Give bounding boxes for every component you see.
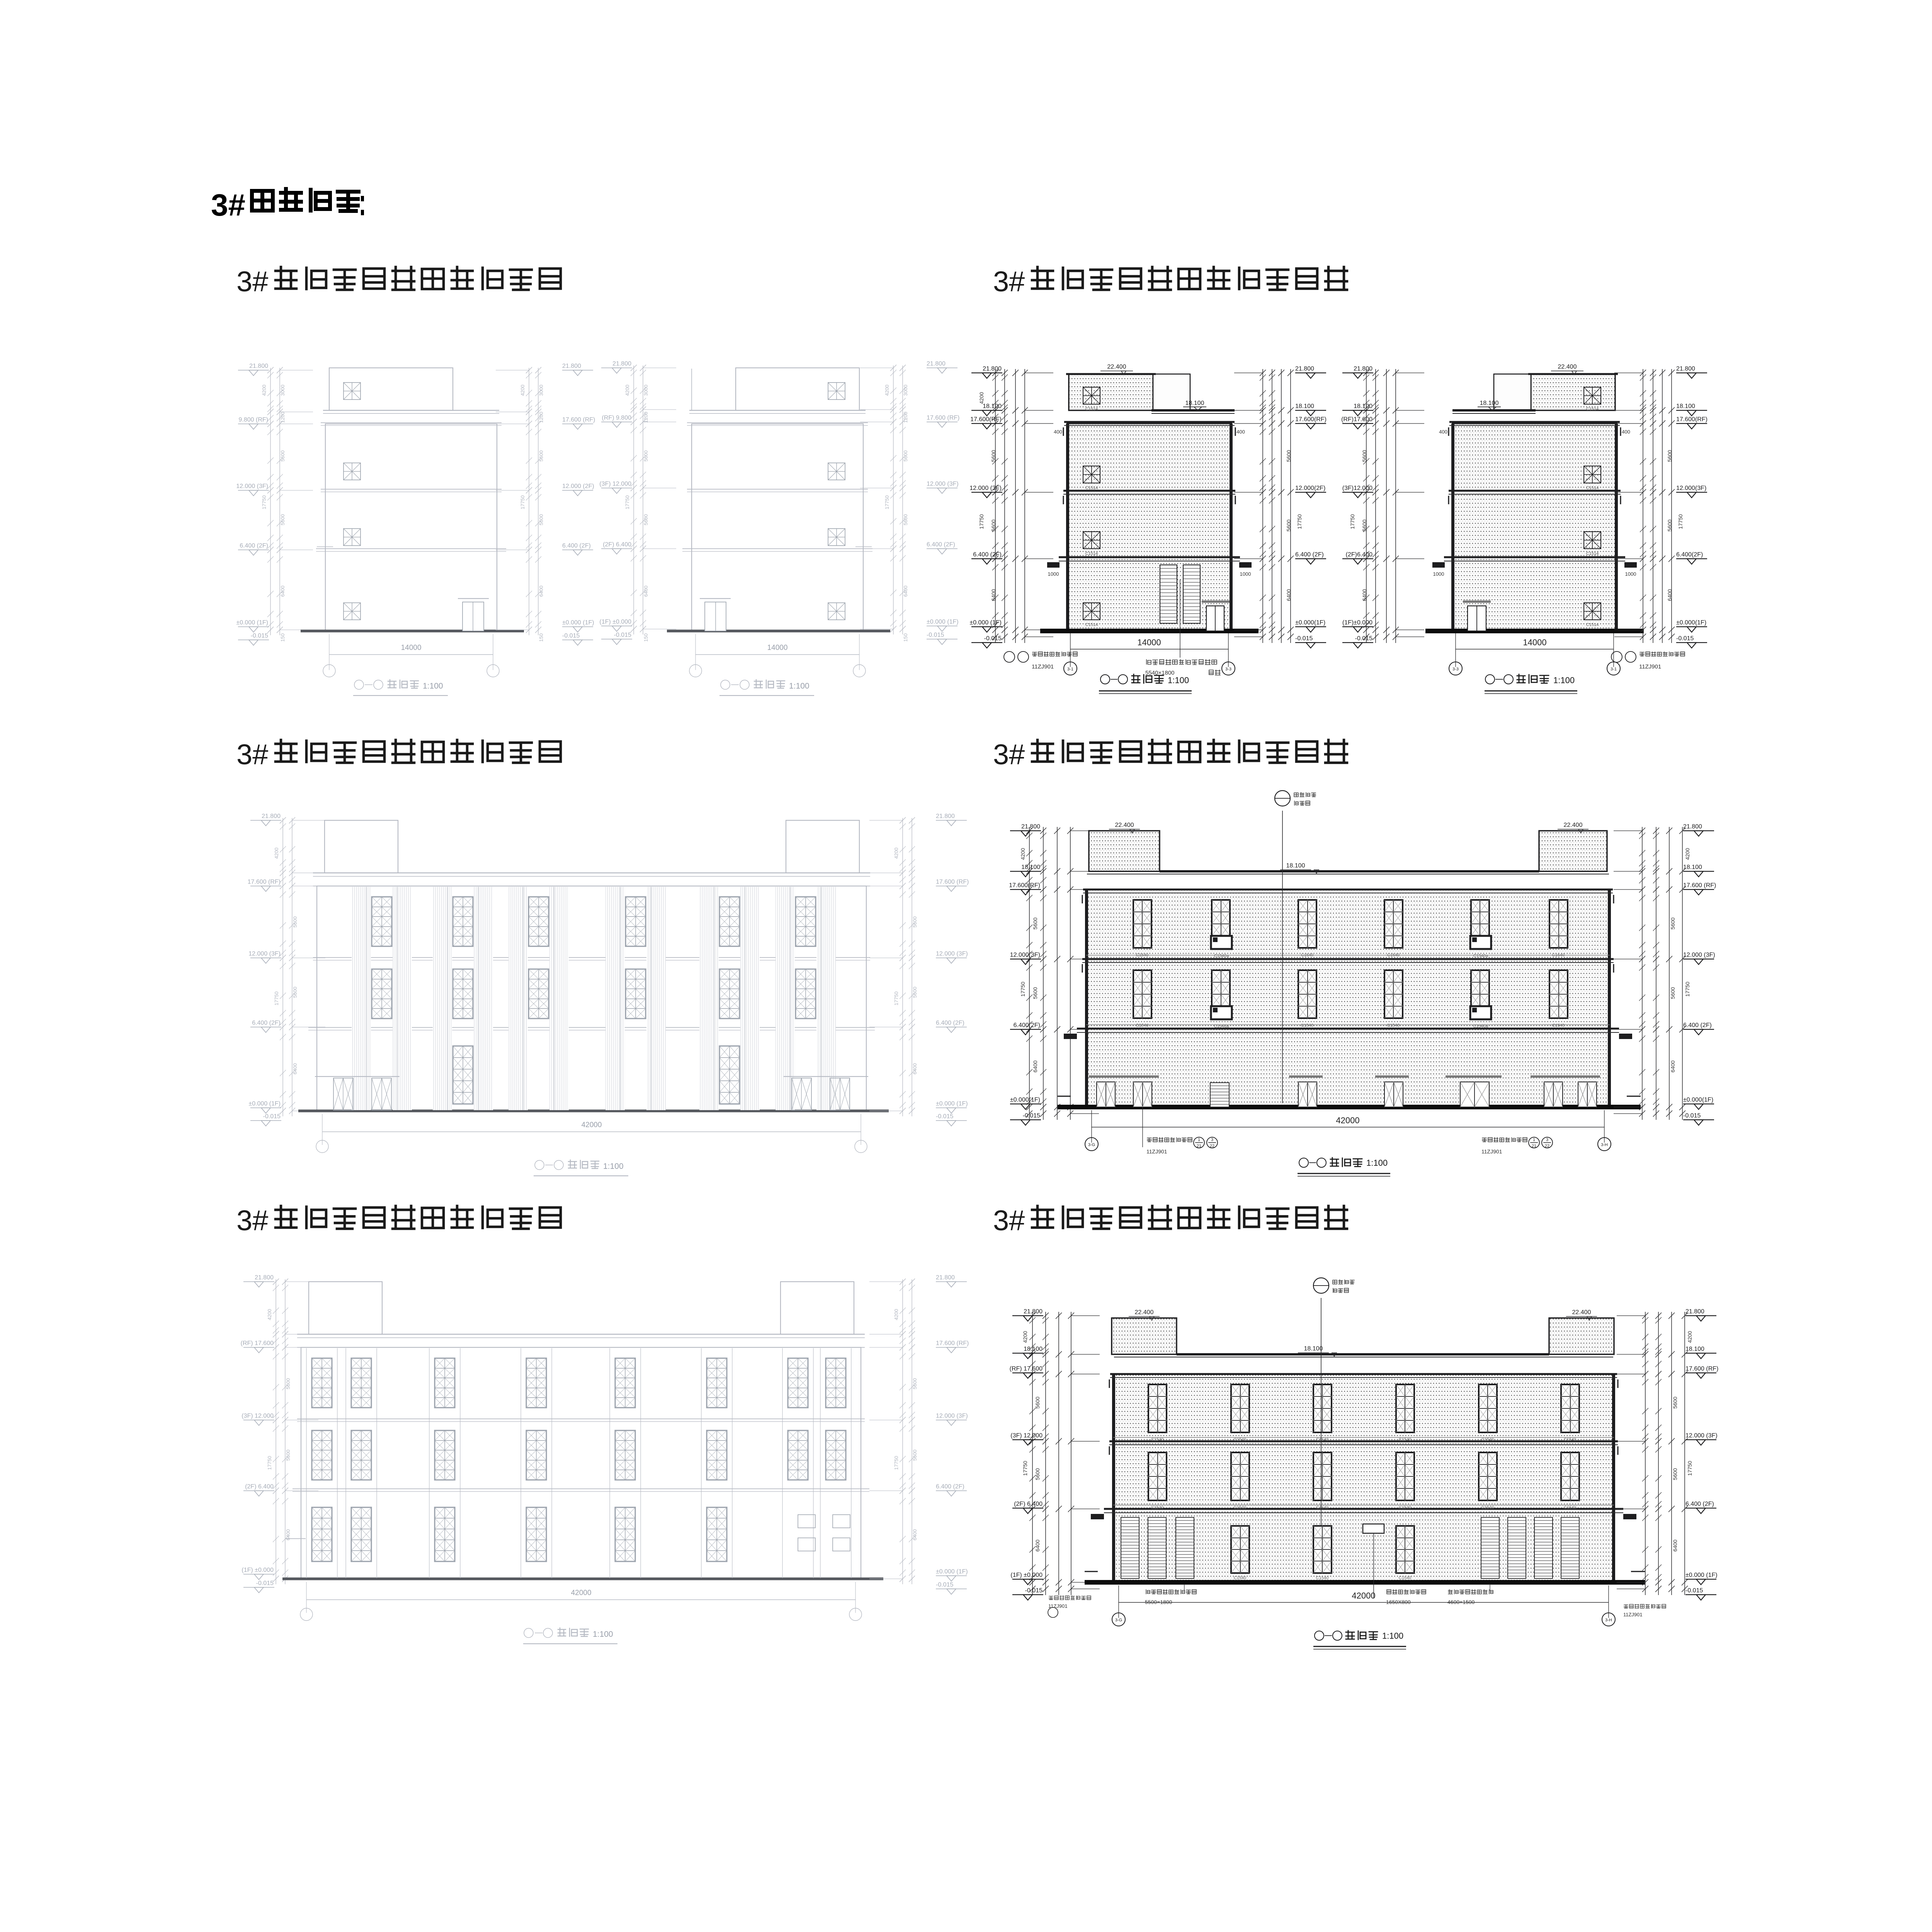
- svg-text:-0.015: -0.015: [256, 1580, 274, 1587]
- svg-text:6400: 6400: [1034, 1539, 1041, 1551]
- svg-text:(RF)17.600: (RF)17.600: [1341, 416, 1372, 423]
- svg-text:12.000 (3F): 12.000 (3F): [936, 1413, 968, 1419]
- svg-text:17.600 (RF): 17.600 (RF): [1683, 882, 1716, 889]
- svg-text:5600: 5600: [1034, 1396, 1041, 1408]
- svg-text:5600: 5600: [1034, 1468, 1041, 1480]
- svg-text:150: 150: [643, 633, 649, 642]
- svg-text:±0.000(1F): ±0.000(1F): [1010, 1097, 1040, 1103]
- svg-text:18.100: 18.100: [1286, 862, 1305, 869]
- svg-text:3000: 3000: [280, 385, 286, 396]
- svg-text:5600: 5600: [1670, 917, 1676, 929]
- svg-text:4200: 4200: [884, 385, 890, 396]
- svg-text:1000: 1000: [1625, 571, 1636, 577]
- svg-text:4200: 4200: [1020, 848, 1026, 860]
- svg-text:C1540: C1540: [1316, 1576, 1328, 1580]
- svg-text:1200: 1200: [280, 412, 286, 423]
- svg-text:18.100: 18.100: [1304, 1345, 1323, 1352]
- svg-text:5600: 5600: [292, 987, 298, 998]
- svg-text:18.100: 18.100: [1683, 864, 1702, 871]
- svg-text:C1540: C1540: [1387, 953, 1400, 957]
- svg-text:4200: 4200: [1687, 1331, 1693, 1343]
- svg-text:3#: 3#: [993, 738, 1025, 770]
- svg-text:21.800: 21.800: [983, 366, 1002, 372]
- svg-text:5600: 5600: [1667, 450, 1673, 462]
- svg-text:C1540: C1540: [1387, 1023, 1400, 1028]
- svg-text:21.800: 21.800: [1295, 366, 1314, 372]
- svg-text:1650X800: 1650X800: [1386, 1599, 1411, 1605]
- svg-text:C1514: C1514: [1085, 407, 1098, 412]
- svg-text:6400: 6400: [912, 1529, 918, 1541]
- svg-text:21.800: 21.800: [936, 1274, 955, 1281]
- svg-text:6400: 6400: [1361, 589, 1367, 601]
- svg-text:5600: 5600: [280, 451, 286, 462]
- svg-text:11ZJ901: 11ZJ901: [1639, 663, 1661, 670]
- svg-text:3: 3: [1211, 1138, 1213, 1142]
- svg-text:5600: 5600: [903, 451, 908, 462]
- svg-text:C1540a: C1540a: [1214, 954, 1229, 958]
- svg-text:5600: 5600: [1032, 987, 1038, 999]
- svg-text:6400: 6400: [292, 1063, 298, 1075]
- svg-text:5600: 5600: [1672, 1468, 1678, 1480]
- svg-text:4200: 4200: [893, 848, 899, 859]
- svg-text:5600: 5600: [285, 1450, 291, 1461]
- svg-text:22.400: 22.400: [1572, 1309, 1591, 1316]
- svg-text:3-3: 3-3: [1225, 667, 1231, 672]
- svg-text:3#: 3#: [993, 1204, 1025, 1236]
- svg-text:17.600 (RF): 17.600 (RF): [1685, 1366, 1718, 1372]
- svg-text:12.000 (3F): 12.000 (3F): [936, 951, 968, 957]
- svg-text:11ZJ901: 11ZJ901: [1481, 1148, 1502, 1155]
- svg-text:3000: 3000: [538, 385, 544, 396]
- svg-text:1200: 1200: [903, 412, 908, 423]
- svg-text:21.800: 21.800: [1021, 823, 1040, 830]
- svg-text:17750: 17750: [884, 495, 890, 509]
- svg-text:17750: 17750: [1020, 981, 1026, 997]
- svg-text:1000: 1000: [1433, 571, 1444, 577]
- svg-text:5600: 5600: [903, 514, 908, 526]
- svg-text:6400: 6400: [280, 586, 286, 597]
- svg-text:1200: 1200: [538, 412, 544, 423]
- svg-text:22: 22: [1210, 1144, 1214, 1148]
- svg-text:18.100: 18.100: [983, 403, 1002, 410]
- svg-text:4200: 4200: [261, 385, 267, 396]
- svg-text:3#: 3#: [236, 265, 268, 298]
- svg-text:5600: 5600: [643, 514, 649, 526]
- svg-text:6.400 (2F): 6.400 (2F): [1295, 551, 1324, 558]
- svg-text:5600: 5600: [1361, 450, 1367, 462]
- svg-text:12.000 (3F): 12.000 (3F): [1683, 952, 1715, 958]
- svg-text:9.800 (RF): 9.800 (RF): [239, 417, 268, 423]
- svg-text:6400: 6400: [990, 589, 997, 601]
- svg-text:C1540: C1540: [1399, 1576, 1411, 1580]
- svg-text:-0.015: -0.015: [614, 632, 631, 638]
- svg-text:6.400 (2F): 6.400 (2F): [562, 543, 591, 549]
- svg-text:6400: 6400: [1670, 1060, 1676, 1072]
- svg-text:5600: 5600: [1672, 1396, 1678, 1408]
- svg-text:3-1: 3-1: [1067, 667, 1073, 672]
- svg-text:3#: 3#: [993, 265, 1025, 298]
- svg-text:5600: 5600: [538, 514, 544, 526]
- svg-text:6.400 (2F): 6.400 (2F): [927, 541, 955, 548]
- svg-text:17750: 17750: [261, 495, 267, 509]
- svg-text:C1514: C1514: [1586, 551, 1599, 556]
- svg-text:-0.015: -0.015: [1685, 1587, 1703, 1594]
- svg-text:C1540: C1540: [1151, 1437, 1163, 1442]
- svg-text:21.800: 21.800: [1685, 1308, 1704, 1315]
- svg-text:42000: 42000: [1336, 1116, 1359, 1125]
- svg-text:(1F) ±0.000: (1F) ±0.000: [599, 619, 631, 625]
- svg-text:17.600(RF): 17.600(RF): [1676, 416, 1708, 423]
- svg-text:21.800: 21.800: [562, 363, 581, 369]
- svg-text:400: 400: [1622, 429, 1630, 435]
- svg-text:12.000(2F): 12.000(2F): [1295, 485, 1325, 492]
- svg-text:150: 150: [903, 633, 908, 642]
- svg-text:3#: 3#: [211, 188, 245, 222]
- svg-text:3-H: 3-H: [1605, 1618, 1612, 1622]
- svg-text:21.800: 21.800: [262, 813, 281, 820]
- svg-text:42000: 42000: [1352, 1591, 1375, 1600]
- svg-text:12.000(3F): 12.000(3F): [1676, 485, 1706, 492]
- svg-text:(3F) 12.000: (3F) 12.000: [599, 481, 631, 487]
- svg-text:6.400 (2F): 6.400 (2F): [240, 543, 268, 549]
- svg-text:1:100: 1:100: [1382, 1631, 1403, 1641]
- svg-text:42000: 42000: [571, 1589, 592, 1597]
- svg-text:22.400: 22.400: [1558, 364, 1577, 370]
- svg-text:C1540: C1540: [1301, 953, 1313, 957]
- svg-text:5600: 5600: [1667, 519, 1673, 531]
- svg-text:C1540: C1540: [1234, 1505, 1246, 1510]
- svg-text:C1540: C1540: [1136, 953, 1148, 957]
- svg-text:3: 3: [1546, 1138, 1548, 1142]
- svg-text:C1540: C1540: [1552, 1023, 1565, 1028]
- svg-text:22.400: 22.400: [1564, 822, 1583, 828]
- svg-text:17750: 17750: [520, 495, 526, 509]
- svg-text:6.400 (2F): 6.400 (2F): [936, 1020, 964, 1026]
- svg-text:17750: 17750: [1022, 1461, 1028, 1476]
- svg-text:C1540: C1540: [1136, 1023, 1148, 1028]
- svg-text:17.600 (RF): 17.600 (RF): [927, 415, 959, 421]
- svg-text:17.600 (RF): 17.600 (RF): [248, 879, 281, 885]
- svg-text:5600: 5600: [1361, 519, 1367, 531]
- svg-text:C1540: C1540: [1564, 1437, 1576, 1442]
- svg-text:-0.015: -0.015: [562, 633, 580, 639]
- svg-text:±0.000 (1F): ±0.000 (1F): [248, 1100, 281, 1107]
- svg-text:14000: 14000: [767, 644, 788, 652]
- svg-text:17.600(RF): 17.600(RF): [1295, 416, 1327, 423]
- svg-text:14000: 14000: [1523, 638, 1546, 647]
- svg-text:18.100: 18.100: [1480, 400, 1499, 406]
- svg-text:C1540: C1540: [1151, 1505, 1163, 1510]
- svg-text:3-G: 3-G: [1115, 1618, 1122, 1622]
- svg-text:C1540: C1540: [1234, 1576, 1246, 1580]
- svg-text:-0.015: -0.015: [1023, 1112, 1040, 1119]
- svg-text:6.400 (2F): 6.400 (2F): [936, 1483, 964, 1490]
- svg-text:C1514: C1514: [1085, 551, 1098, 556]
- svg-text:22.400: 22.400: [1107, 364, 1126, 370]
- svg-text:17.600 (RF): 17.600 (RF): [562, 417, 595, 423]
- svg-text:17750: 17750: [274, 992, 279, 1005]
- svg-text:22.400: 22.400: [1115, 822, 1134, 828]
- svg-text:(3F) 12.000: (3F) 12.000: [241, 1413, 274, 1419]
- svg-text:-0.015: -0.015: [927, 632, 944, 638]
- svg-text:C1514: C1514: [1586, 622, 1599, 627]
- svg-text:C1540: C1540: [1552, 953, 1565, 957]
- svg-text:22.400: 22.400: [1135, 1309, 1154, 1316]
- svg-text:C1540a: C1540a: [1214, 1024, 1229, 1029]
- svg-text:4200: 4200: [1684, 848, 1690, 860]
- svg-text:6400: 6400: [538, 586, 544, 597]
- svg-text:±0.000 (1F): ±0.000 (1F): [936, 1568, 968, 1575]
- svg-text:12.000 (3F): 12.000 (3F): [236, 483, 268, 490]
- svg-text:4200: 4200: [893, 1309, 899, 1320]
- svg-text:1:100: 1:100: [789, 682, 810, 690]
- svg-text:C1540: C1540: [1234, 1437, 1246, 1442]
- svg-text:21: 21: [1532, 1144, 1536, 1148]
- svg-text:21.800: 21.800: [1676, 366, 1695, 372]
- svg-text:5600: 5600: [990, 450, 997, 462]
- svg-text:-0.015: -0.015: [936, 1582, 953, 1588]
- svg-text:18.100: 18.100: [1354, 403, 1372, 410]
- svg-text:5600: 5600: [285, 1378, 291, 1389]
- svg-text:18.100: 18.100: [1676, 403, 1695, 410]
- svg-text:5600: 5600: [990, 519, 997, 531]
- svg-text:1200: 1200: [643, 412, 649, 423]
- svg-text:5600: 5600: [912, 917, 918, 928]
- svg-text:6.400 (2F): 6.400 (2F): [1685, 1501, 1714, 1507]
- svg-text:6400: 6400: [903, 586, 908, 597]
- svg-text:C1540a: C1540a: [1473, 954, 1488, 958]
- svg-text:4200: 4200: [520, 385, 526, 396]
- svg-text:1:100: 1:100: [1366, 1158, 1388, 1168]
- svg-text:±0.000 (1F): ±0.000 (1F): [236, 619, 268, 626]
- svg-text:4200: 4200: [624, 385, 630, 396]
- svg-text:4200: 4200: [978, 392, 985, 404]
- svg-text:1:100: 1:100: [1553, 675, 1575, 685]
- svg-text:±0.000 (1F): ±0.000 (1F): [927, 619, 959, 625]
- svg-text:(2F) 6.400: (2F) 6.400: [603, 541, 631, 548]
- svg-text:400: 400: [1236, 429, 1245, 435]
- svg-text:(RF) 17.600: (RF) 17.600: [241, 1340, 274, 1347]
- svg-text:3000: 3000: [903, 385, 908, 396]
- svg-text:21.800: 21.800: [255, 1274, 274, 1281]
- svg-text:11ZJ901: 11ZJ901: [1146, 1148, 1167, 1155]
- svg-text:(3F) 12.000: (3F) 12.000: [1010, 1432, 1043, 1439]
- svg-text:18.100: 18.100: [1021, 864, 1040, 871]
- svg-text:6400: 6400: [1032, 1060, 1038, 1072]
- svg-text:(1F) ±0.000: (1F) ±0.000: [1010, 1572, 1043, 1578]
- svg-text:14000: 14000: [1137, 638, 1161, 647]
- svg-text:12.000 (3F): 12.000 (3F): [969, 485, 1002, 492]
- svg-text:5600: 5600: [912, 1450, 918, 1461]
- svg-text:21.800: 21.800: [1354, 366, 1372, 372]
- svg-text:-0.015: -0.015: [1676, 635, 1694, 642]
- svg-text:11ZJ901: 11ZJ901: [1623, 1612, 1643, 1617]
- svg-text:4200: 4200: [267, 1309, 272, 1320]
- svg-text:6.400 (2F): 6.400 (2F): [973, 551, 1002, 558]
- svg-text:21.800: 21.800: [936, 813, 955, 820]
- svg-text:-0.015: -0.015: [1355, 635, 1372, 642]
- svg-text:21.800: 21.800: [612, 361, 631, 367]
- svg-text:4600×1500: 4600×1500: [1447, 1599, 1475, 1605]
- svg-text:17750: 17750: [893, 992, 899, 1005]
- svg-text:±0.000 (1F): ±0.000 (1F): [936, 1100, 968, 1107]
- svg-text:17750: 17750: [1296, 514, 1303, 529]
- svg-text:5600: 5600: [1032, 917, 1038, 929]
- svg-text:6400: 6400: [643, 586, 649, 597]
- svg-text:(RF) 9.800: (RF) 9.800: [602, 415, 632, 421]
- svg-text:-0.015: -0.015: [936, 1113, 953, 1120]
- svg-text:6.400 (2F): 6.400 (2F): [1683, 1022, 1712, 1029]
- svg-text:5600: 5600: [643, 451, 649, 462]
- svg-text:(1F)±0.000: (1F)±0.000: [1342, 619, 1372, 626]
- svg-text:17750: 17750: [624, 495, 630, 509]
- svg-text:C1514: C1514: [1586, 486, 1599, 490]
- svg-text:6400: 6400: [912, 1063, 918, 1075]
- svg-text:5600: 5600: [538, 451, 544, 462]
- svg-text:17750: 17750: [267, 1456, 272, 1470]
- svg-text:18.100: 18.100: [1024, 1346, 1043, 1352]
- svg-text:(2F) 6.400: (2F) 6.400: [1014, 1501, 1043, 1507]
- svg-text:17.600 (RF): 17.600 (RF): [936, 1340, 969, 1347]
- svg-text:C1540: C1540: [1481, 1437, 1494, 1442]
- svg-text:-0.015: -0.015: [984, 635, 1002, 642]
- svg-text:14000: 14000: [401, 644, 422, 652]
- svg-text:17.600(RF): 17.600(RF): [970, 416, 1002, 423]
- svg-text:21.800: 21.800: [927, 361, 946, 367]
- svg-text:3#: 3#: [236, 1204, 268, 1236]
- svg-text:1: 1: [1198, 1138, 1200, 1142]
- svg-text:6.400(2F): 6.400(2F): [1676, 551, 1703, 558]
- svg-text:18.100: 18.100: [1185, 400, 1204, 406]
- svg-text:-0.015: -0.015: [1025, 1587, 1043, 1594]
- svg-text:(2F) 6.400: (2F) 6.400: [245, 1483, 274, 1490]
- svg-text:C1540: C1540: [1316, 1505, 1328, 1510]
- svg-text:3-G: 3-G: [1088, 1143, 1095, 1147]
- svg-text:6400: 6400: [1672, 1539, 1678, 1551]
- svg-text:4200: 4200: [274, 848, 279, 859]
- svg-text:5600: 5600: [912, 987, 918, 998]
- svg-text:12.000 (3F): 12.000 (3F): [1685, 1432, 1718, 1439]
- svg-text:5600: 5600: [912, 1378, 918, 1389]
- svg-text:C1540: C1540: [1399, 1437, 1411, 1442]
- svg-text:±0.000 (1F): ±0.000 (1F): [969, 619, 1002, 626]
- svg-text:5600: 5600: [1286, 450, 1292, 462]
- svg-text:21.800: 21.800: [249, 363, 268, 369]
- svg-text:12.000(3F): 12.000(3F): [1010, 952, 1040, 958]
- svg-text:21.800: 21.800: [1683, 823, 1702, 830]
- svg-text:(1F) ±0.000: (1F) ±0.000: [241, 1567, 274, 1573]
- svg-text:±0.000(1F): ±0.000(1F): [1683, 1097, 1713, 1103]
- svg-text:C1514: C1514: [1586, 407, 1599, 412]
- svg-text:18.100: 18.100: [1295, 403, 1314, 410]
- svg-text:3-3: 3-3: [1452, 667, 1459, 672]
- svg-text:C1540a: C1540a: [1473, 1024, 1488, 1029]
- svg-text:12.000 (3F): 12.000 (3F): [927, 481, 959, 487]
- svg-text:5500×1800: 5500×1800: [1145, 1599, 1172, 1605]
- svg-text:1:100: 1:100: [603, 1162, 624, 1171]
- svg-text:6.400 (2F): 6.400 (2F): [252, 1020, 281, 1026]
- svg-text:1:100: 1:100: [423, 682, 443, 690]
- svg-text:17.600(RF): 17.600(RF): [1009, 882, 1040, 889]
- svg-text:150: 150: [280, 633, 286, 642]
- svg-text:C1540: C1540: [1316, 1437, 1328, 1442]
- svg-text:1000: 1000: [1240, 571, 1251, 577]
- svg-text:(RF) 17.600: (RF) 17.600: [1010, 1366, 1043, 1372]
- svg-text:C1514: C1514: [1085, 486, 1098, 490]
- svg-text:42000: 42000: [582, 1121, 602, 1129]
- svg-text:C1540: C1540: [1399, 1505, 1411, 1510]
- svg-text:±0.000(1F): ±0.000(1F): [1295, 619, 1325, 626]
- svg-text:17750: 17750: [1684, 981, 1690, 997]
- svg-text:11ZJ901: 11ZJ901: [1048, 1603, 1068, 1609]
- svg-text:3#: 3#: [236, 738, 268, 770]
- svg-text:18.100: 18.100: [1685, 1346, 1704, 1352]
- svg-text:-0.015: -0.015: [251, 633, 268, 639]
- svg-text:6400: 6400: [1667, 589, 1673, 601]
- svg-text:-0.015: -0.015: [1295, 635, 1313, 642]
- svg-text:1: 1: [1533, 1138, 1535, 1142]
- svg-text:C1514: C1514: [1085, 622, 1098, 627]
- svg-text:400: 400: [1439, 429, 1447, 435]
- svg-text:1:100: 1:100: [593, 1630, 613, 1639]
- svg-text:5600: 5600: [280, 514, 286, 526]
- svg-text:17750: 17750: [978, 514, 985, 529]
- svg-text:17750: 17750: [1687, 1461, 1693, 1476]
- svg-text:±0.000 (1F): ±0.000 (1F): [1685, 1572, 1718, 1578]
- svg-text:17750: 17750: [1349, 514, 1355, 529]
- svg-text:12.000 (3F): 12.000 (3F): [248, 951, 281, 957]
- svg-text:C1540: C1540: [1481, 1505, 1494, 1510]
- svg-text:1:100: 1:100: [1168, 675, 1189, 685]
- svg-text:5600: 5600: [1286, 519, 1292, 531]
- svg-text:C1540: C1540: [1564, 1505, 1576, 1510]
- svg-text:±0.000(1F): ±0.000(1F): [1676, 619, 1706, 626]
- svg-text:4200: 4200: [1022, 1331, 1028, 1343]
- svg-text:(3F)12.000: (3F)12.000: [1342, 485, 1372, 492]
- svg-text:3000: 3000: [643, 385, 649, 396]
- svg-text:C1540: C1540: [1301, 1023, 1313, 1028]
- svg-text:3-1: 3-1: [1611, 667, 1617, 672]
- svg-text:22: 22: [1545, 1144, 1549, 1148]
- svg-text:(2F)6.400: (2F)6.400: [1346, 551, 1372, 558]
- svg-text:12.000 (2F): 12.000 (2F): [562, 483, 594, 490]
- svg-text:17750: 17750: [893, 1456, 899, 1470]
- svg-text:150: 150: [538, 633, 544, 642]
- svg-text:400: 400: [1054, 429, 1062, 435]
- svg-text:3-H: 3-H: [1601, 1143, 1608, 1147]
- svg-text:±0.000 (1F): ±0.000 (1F): [562, 619, 594, 626]
- svg-text:17750: 17750: [1677, 514, 1684, 529]
- svg-text:1000: 1000: [1048, 571, 1059, 577]
- svg-text:-0.015: -0.015: [263, 1113, 281, 1120]
- svg-text:21.800: 21.800: [1024, 1308, 1043, 1315]
- svg-text:5600: 5600: [1670, 987, 1676, 999]
- svg-text:11ZJ901: 11ZJ901: [1032, 663, 1054, 670]
- svg-text:21: 21: [1197, 1144, 1201, 1148]
- svg-text:5600: 5600: [292, 917, 298, 928]
- svg-text:6400: 6400: [1286, 589, 1292, 601]
- svg-text:-0.015: -0.015: [1683, 1112, 1701, 1119]
- svg-text:17.600 (RF): 17.600 (RF): [936, 879, 969, 885]
- svg-text:6.400(2F): 6.400(2F): [1014, 1022, 1040, 1029]
